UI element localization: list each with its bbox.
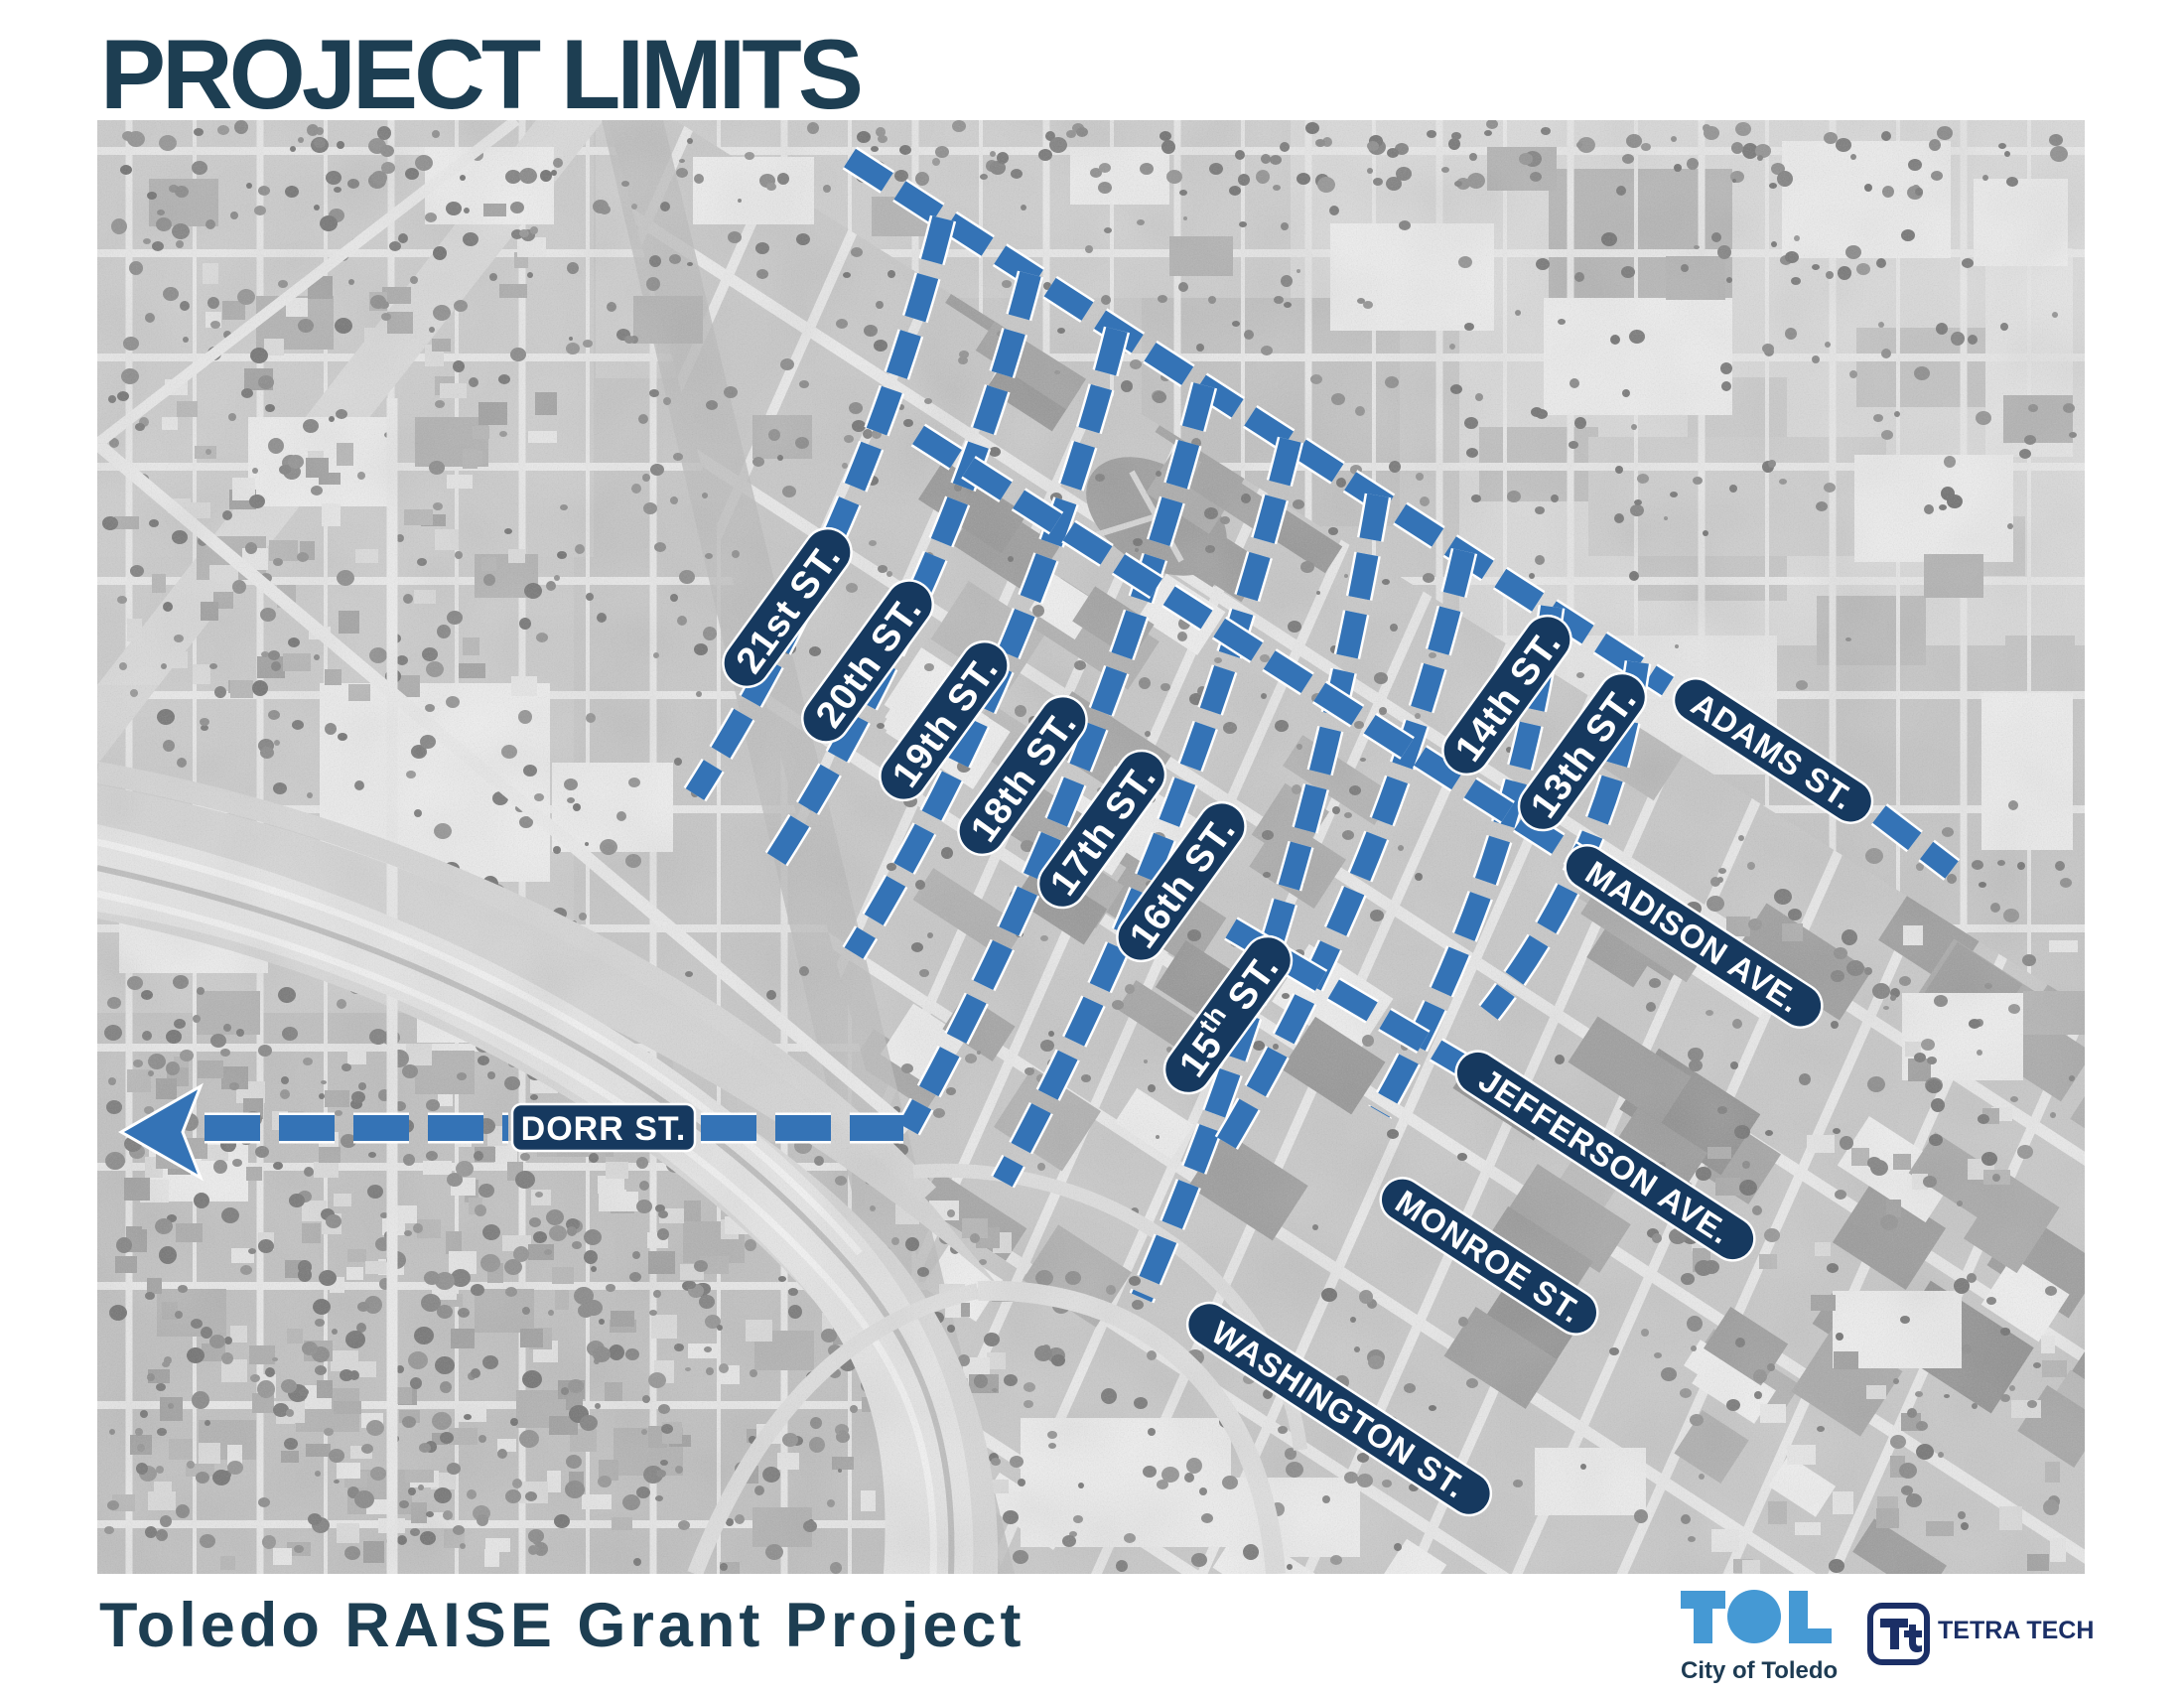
svg-text:DORR ST.: DORR ST. xyxy=(521,1110,687,1148)
svg-text:City of Toledo: City of Toledo xyxy=(1681,1657,1838,1684)
svg-text:TETRA TECH: TETRA TECH xyxy=(1938,1617,2094,1644)
